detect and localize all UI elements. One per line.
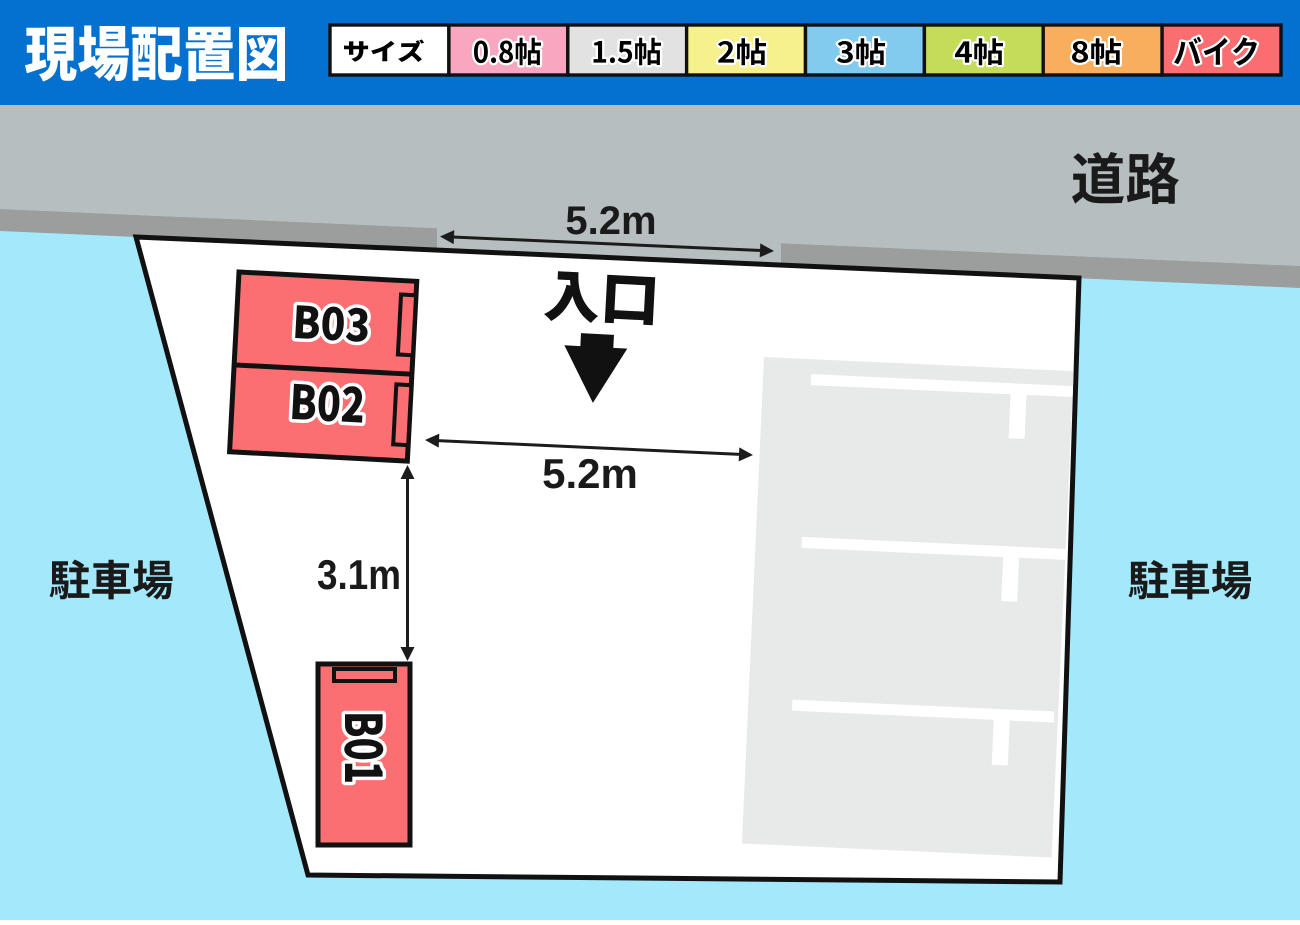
svg-text:3.1m: 3.1m bbox=[317, 551, 401, 598]
svg-text:5.2m: 5.2m bbox=[565, 199, 656, 243]
svg-text:5.2m: 5.2m bbox=[542, 450, 638, 497]
